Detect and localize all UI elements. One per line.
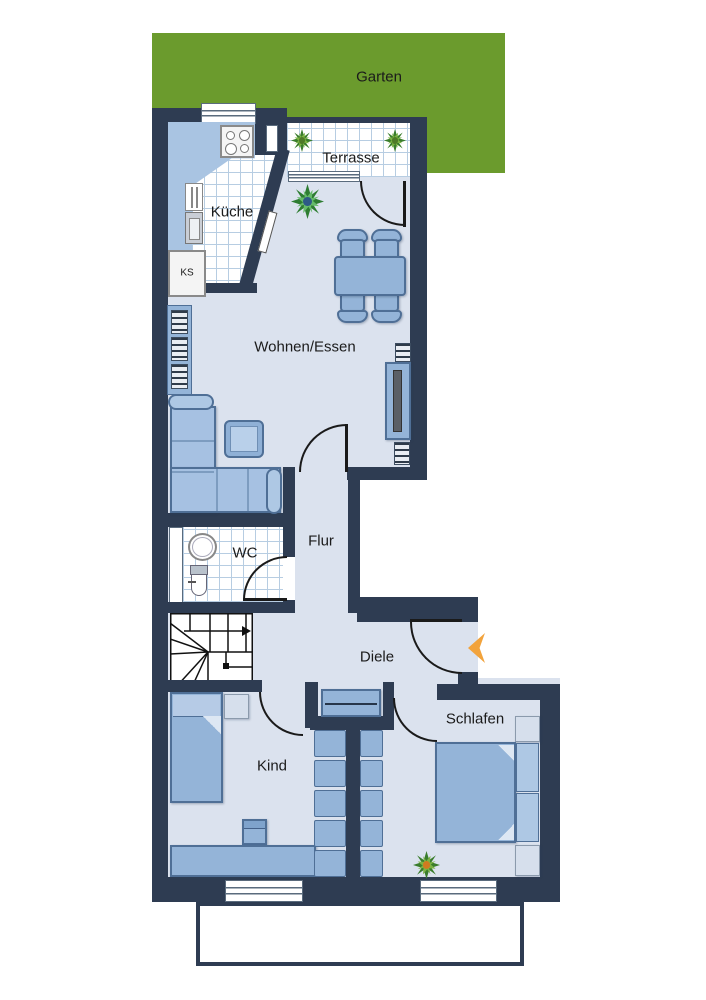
child-bed [170, 692, 223, 803]
sofa-armrest-right [266, 468, 282, 514]
child-bed-pillow [173, 695, 220, 717]
living-door-leaf [345, 424, 348, 472]
child-stool [242, 819, 267, 845]
wall-hall-right [348, 475, 360, 613]
wardrobe-segment [360, 730, 383, 757]
bed-pillow [516, 793, 539, 842]
sofa-cushion-line [247, 469, 249, 511]
wall-child-top [152, 680, 262, 692]
speaker-bottom [394, 442, 410, 465]
wardrobe-segment [360, 820, 383, 847]
speaker-top [395, 343, 411, 362]
bed-pillow [516, 743, 539, 792]
child-stool-top [244, 821, 265, 829]
wardrobe-segment [314, 730, 346, 757]
child-label: Kind [257, 758, 287, 775]
bedroom-window [420, 880, 497, 902]
dining-chair-back [371, 310, 402, 323]
wc-toilet-bowl [191, 574, 207, 596]
wall-wc-bottom [168, 602, 295, 613]
wardrobe-segment [360, 760, 383, 787]
coffee-table-top [230, 426, 258, 452]
living-label: Wohnen/Essen [254, 339, 355, 356]
double-bed-mattress [435, 742, 516, 843]
wall-bottom-outer [152, 877, 560, 902]
fridge-label: KS [180, 268, 193, 279]
entrance-door-leaf [410, 619, 462, 622]
dishwasher-lines [196, 187, 198, 208]
bedroom-label: Schlafen [446, 711, 504, 728]
vestibule-label: Diele [360, 649, 394, 666]
kitchen-sink-basin [189, 218, 200, 240]
wc-toilet-flush [188, 581, 196, 583]
shelf-section [171, 310, 188, 334]
child-bed-fold [203, 716, 221, 734]
sofa-horizontal [170, 467, 281, 513]
terrace-label: Terrasse [322, 150, 380, 167]
floor-plan: Garten [0, 0, 706, 1000]
wardrobe-segment [314, 850, 346, 877]
coffee-table [224, 420, 264, 458]
terrace-door-leaf [403, 181, 406, 227]
wall-right-outer [410, 117, 427, 480]
terrace-french-window [288, 171, 360, 182]
stove-burner [225, 143, 237, 155]
bedroom-nightstand-bottom [515, 845, 540, 876]
sofa-cushion-line [172, 471, 214, 473]
tv-screen [393, 370, 402, 432]
wall-bedroom-right [540, 698, 560, 902]
child-wardrobe [314, 730, 346, 877]
kitchen-pass-window [266, 125, 278, 152]
lower-terrace-outline [196, 902, 524, 966]
child-desk [170, 845, 316, 877]
stove [220, 125, 254, 158]
shelf-section [171, 337, 188, 361]
stove-burner [239, 130, 250, 141]
staircase-treads [170, 613, 253, 687]
garden-label: Garten [356, 69, 402, 86]
wall-terrace-garden-edge [287, 117, 410, 123]
wardrobe-segment [314, 790, 346, 817]
kitchen-window [201, 103, 256, 124]
bedroom-nightstand-top [515, 716, 540, 742]
wc-side-window [169, 527, 183, 603]
wc-door-leaf [243, 598, 287, 601]
wardrobe-segment [314, 760, 346, 787]
wardrobe-segment [360, 790, 383, 817]
wall-room-divider [346, 728, 360, 877]
hall-dresser-line [325, 703, 377, 705]
stove-burner [240, 144, 249, 153]
wardrobe-segment [360, 850, 383, 877]
wc-sink [188, 533, 217, 561]
dining-chair-back [337, 310, 368, 323]
bedroom-wardrobe [360, 730, 383, 877]
dining-table [334, 256, 406, 296]
wc-label: WC [233, 545, 258, 562]
wall-living-bottom-left [168, 513, 295, 527]
bed-fold-bottom [498, 824, 514, 840]
staircase [170, 613, 253, 687]
shelf-section [171, 364, 188, 389]
kitchen-sink-unit [185, 212, 203, 244]
bed-fold-top [498, 745, 514, 761]
living-shelf [167, 305, 192, 395]
kitchen-label: Küche [211, 204, 254, 221]
sofa-cushion-line [216, 469, 218, 511]
wall-wc-right-upper [283, 527, 295, 557]
wall-left-outer [152, 108, 168, 902]
dishwasher-lines [191, 187, 193, 208]
wardrobe-segment [314, 820, 346, 847]
kitchen-dishwasher [185, 183, 203, 211]
stove-burner [226, 131, 235, 140]
child-nightstand [224, 694, 249, 719]
sofa-cushion-line [172, 440, 214, 442]
hall-label: Flur [308, 533, 334, 550]
sofa-armrest-top [168, 394, 214, 410]
child-window [225, 880, 303, 902]
